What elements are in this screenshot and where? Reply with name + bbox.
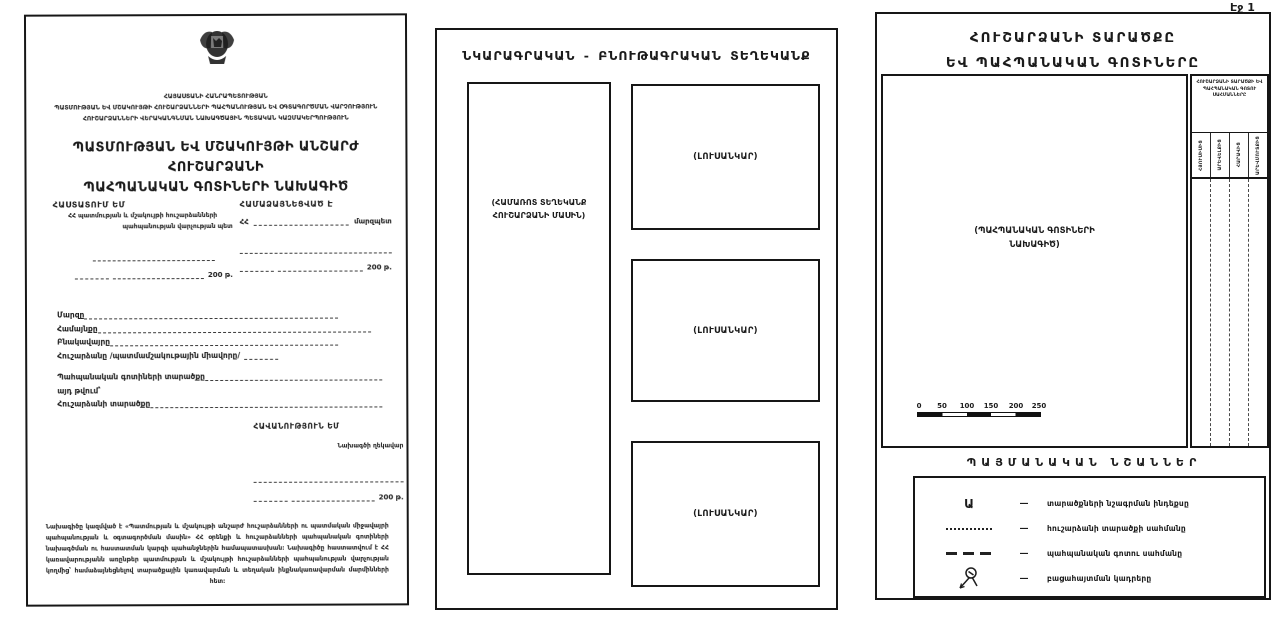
scale-tick: 150: [984, 402, 999, 410]
field-label: Համայնքը: [57, 324, 98, 333]
photo-placeholder-box-3: (ԼՈՒՍԱՆԿԱՐ): [631, 441, 820, 587]
agree-heading: ՀԱՄԱՁԱՅՆԵՑՎԱԾ Է: [240, 199, 392, 209]
document-title-line-2: ՊԱՀՊԱՆԱԿԱՆ ԳՈՏԻՆԵՐԻ ՆԱԽԱԳԻԾ: [35, 178, 398, 199]
field-label: Հուշարձանի տարածքը: [57, 399, 150, 408]
date-line: [240, 264, 274, 272]
field-row-protection-zone-area: Պահպանական գոտիների տարածքը: [57, 371, 382, 381]
side-table-column-headers: ՀՅՈՒՍԻՍԻՑ ԱՐԵՎԵԼՔԻՑ ՀԱՐԱՎԻՑ ԱՐԵՎՄՈՒՏՔԻՑ: [1192, 133, 1267, 179]
date-line: [254, 494, 288, 502]
field-blank-line: [244, 351, 278, 359]
photo-placeholder-label: (ԼՈՒՍԱՆԿԱՐ): [693, 509, 758, 519]
date-line: [75, 271, 109, 279]
approve-block: ՀԱՍՏԱՏՈՒՄ ԵՄ ՀՀ պատմության և մշակույթի հ…: [53, 200, 233, 280]
field-blank-line: [84, 311, 338, 320]
field-label: Հուշարձանը /պատմամշակութային միավորը/: [57, 350, 240, 360]
legend-item-index: Ա — տարածքների նշագրման ինդեքսը: [937, 491, 1248, 516]
photo-placeholder-label: (ԼՈՒՍԱՆԿԱՐ): [693, 326, 758, 336]
legend-title: ՊԱՅՄԱՆԱԿԱՆ ՆՇԱՆՆԵՐ: [907, 456, 1261, 469]
column-header-north: ՀՅՈՒՍԻՍԻՑ: [1192, 133, 1211, 177]
scale-tick: 0: [917, 402, 922, 410]
panel3-title-line-2: ԵՎ ՊԱՀՊԱՆԱԿԱՆ ԳՈՏԻՆԵՐԸ: [881, 51, 1265, 76]
map-placeholder-line-2: ՆԱԽԱԳԻԾ): [887, 238, 1182, 252]
photo-placeholder-box-2: (ԼՈՒՍԱՆԿԱՐ): [631, 259, 820, 402]
document-title-line-1: ՊԱՏՄՈՒԹՅԱՆ ԵՎ ՄՇԱԿՈՒՅԹԻ ԱՆՇԱՐԺ ՀՈՒՇԱՐՁԱՆ…: [34, 137, 397, 179]
dotted-line-symbol: [946, 528, 992, 530]
descriptive-reference-page: ՆԿԱՐԱԳՐԱԿԱՆ - ԲՆՈՒԹԱԳՐԱԿԱՆ ՏԵՂԵԿԱՆՔ (ՀԱՄ…: [435, 28, 838, 610]
project-approval-block: ՀԱՎԱՆՈՒԹՅՈՒՆ ԵՄ Նախագծի ղեկավար 200 թ.: [253, 421, 403, 502]
field-label: Բնակավայրը: [57, 337, 110, 346]
agree-role: մարզպետ: [354, 217, 392, 225]
signature-line: [240, 245, 392, 254]
legend-item-photo-frames: — բացահայտման կադրերը: [937, 566, 1248, 591]
field-row-monument-area: Հուշարձանի տարածքը: [57, 398, 382, 408]
dashed-line-symbol: [946, 552, 992, 555]
date-year-suffix: 200 թ.: [367, 263, 392, 271]
panel3-title: ՀՈՒՇԱՐՁԱՆԻ ՏԱՐԱԾՔԸ ԵՎ ՊԱՀՊԱՆԱԿԱՆ ԳՈՏԻՆԵՐ…: [881, 26, 1265, 76]
agree-prefix: ՀՀ: [240, 218, 249, 226]
approval-signature-row: ՀԱՍՏԱՏՈՒՄ ԵՄ ՀՀ պատմության և մշակույթի հ…: [53, 199, 392, 279]
agree-block: ՀԱՄԱՁԱՅՆԵՑՎԱԾ Է ՀՀ մարզպետ 200 թ.: [240, 199, 392, 279]
legend-separator: —: [1001, 549, 1047, 559]
map-placeholder-label: (ՊԱՀՊԱՆԱԿԱՆ ԳՈՏԻՆԵՐԻ ՆԱԽԱԳԻԾ): [887, 224, 1182, 253]
title-sheet-page: ՀԱՅԱՍՏԱՆԻ ՀԱՆՐԱՊԵՏՈՒԹՅԱՆ ՊԱՏՄՈՒԹՅԱՆ ԵՎ Մ…: [24, 13, 409, 606]
approve-subline-1: ՀՀ պատմության և մշակույթի հուշարձանների: [53, 211, 233, 221]
legend-separator: —: [1001, 574, 1047, 584]
photo-placeholder-label: (ԼՈՒՍԱՆԿԱՐ): [693, 152, 758, 162]
field-row-province: Մարզը: [57, 309, 382, 319]
brief-reference-label: (ՀԱՄԱՌՈՏ ՏԵՂԵԿԱՆՔ ՀՈՒՇԱՐՁԱՆԻ ՄԱՍԻՆ): [471, 196, 607, 222]
brief-reference-box: (ՀԱՄԱՌՈՏ ՏԵՂԵԿԱՆՔ ՀՈՒՇԱՐՁԱՆԻ ՄԱՍԻՆ): [467, 82, 611, 575]
field-row-including: այդ թվում՝: [57, 385, 382, 395]
field-blank-line: [98, 324, 371, 333]
side-table-header: ՀՈՒՇԱՐՁԱՆԻ ՏԱՐԱԾՔԻ ԵՎ ՊԱՀՊԱՆԱԿԱՆ ԳՈՏՈՒ Ս…: [1192, 76, 1267, 133]
field-label: Պահպանական գոտիների տարածքը: [57, 372, 205, 382]
field-label: Մարզը: [57, 310, 84, 319]
legend-item-label: հուշարձանի տարածքի սահմանը: [1047, 524, 1248, 533]
legend-separator: —: [1001, 499, 1047, 509]
date-line: [113, 271, 204, 279]
date-line: [278, 263, 363, 271]
armenia-coat-of-arms-icon: [194, 24, 240, 68]
column-header-west: ԱՐԵՎՄՈՒՏՔԻՑ: [1249, 133, 1267, 177]
document-title: ՊԱՏՄՈՒԹՅԱՆ ԵՎ ՄՇԱԿՈՒՅԹԻ ԱՆՇԱՐԺ ՀՈՒՇԱՐՁԱՆ…: [34, 137, 397, 199]
field-row-monument: Հուշարձանը /պատմամշակութային միավորը/: [57, 350, 382, 360]
scale-tick: 250: [1032, 402, 1047, 410]
field-label: այդ թվում՝: [57, 386, 100, 395]
panel2-title: ՆԿԱՐԱԳՐԱԿԱՆ - ԲՆՈՒԹԱԳՐԱԿԱՆ ՏԵՂԵԿԱՆՔ: [443, 48, 830, 63]
scale-tick: 100: [960, 402, 975, 410]
legend-item-zone-boundary: — պահպանական գոտու սահմանը: [937, 541, 1248, 566]
panel3-title-line-1: ՀՈՒՇԱՐՁԱՆԻ ՏԱՐԱԾՔԸ: [881, 26, 1265, 51]
boundaries-side-table: ՀՈՒՇԱՐՁԱՆԻ ՏԱՐԱԾՔԻ ԵՎ ՊԱՀՊԱՆԱԿԱՆ ԳՈՏՈՒ Ս…: [1190, 74, 1269, 448]
column-header-east: ԱՐԵՎԵԼՔԻՑ: [1211, 133, 1230, 177]
legend-box: Ա — տարածքների նշագրման ինդեքսը — հուշար…: [913, 476, 1266, 598]
legend-item-label: բացահայտման կադրերը: [1047, 574, 1248, 583]
org-line-2: ՊԱՏՄՈՒԹՅԱՆ ԵՎ ՄՇԱԿՈՒՅԹԻ ՀՈՒՇԱՐՁԱՆՆԵՐԻ ՊԱ…: [34, 102, 397, 114]
field-blank-line: [205, 372, 382, 381]
approve-subline-2: պահպանության վարչության պետ: [53, 222, 233, 232]
column-header-south: ՀԱՐԱՎԻՑ: [1230, 133, 1249, 177]
field-blank-line: [110, 338, 338, 347]
protection-zones-map-box: (ՊԱՀՊԱՆԱԿԱՆ ԳՈՏԻՆԵՐԻ ՆԱԽԱԳԻԾ) 0 50 100 1…: [881, 74, 1188, 448]
org-line-3: ՀՈՒՇԱՐՁԱՆՆԵՐԻ ՎԵՐԱԿԱՆԳՆՄԱՆ ՆԱԽԱԳԾԱՅԻՆ ՊԵ…: [34, 113, 397, 125]
brief-reference-label-line-1: (ՀԱՄԱՌՈՏ ՏԵՂԵԿԱՆՔ: [471, 196, 607, 209]
date-year-suffix: 200 թ.: [379, 493, 404, 501]
marz-name-line: [254, 218, 349, 226]
signature-line: [254, 474, 404, 483]
legend-item-label: պահպանական գոտու սահմանը: [1047, 549, 1248, 558]
field-row-community: Համայնքը: [57, 323, 382, 333]
monument-form-fields: Մարզը Համայնքը Բնակավայրը Հուշարձանը /պա…: [57, 309, 382, 413]
field-blank-line: [150, 399, 382, 408]
scale-tick: 200: [1009, 402, 1024, 410]
legend-item-label: տարածքների նշագրման ինդեքսը: [1047, 499, 1248, 508]
scale-bar-segments: [917, 412, 1041, 417]
map-scale-bar: 0 50 100 150 200 250: [917, 402, 1041, 420]
photo-station-tripod-icon: [956, 566, 982, 592]
footer-legal-paragraph: Նախագիծը կազմված է «Պատմության և մշակույ…: [46, 520, 389, 588]
project-leader-role: Նախագծի ղեկավար: [253, 441, 403, 451]
index-letter-symbol: Ա: [964, 497, 974, 511]
scale-tick: 50: [937, 402, 947, 410]
monument-territory-page: ՀՈՒՇԱՐՁԱՆԻ ՏԱՐԱԾՔԸ ԵՎ ՊԱՀՊԱՆԱԿԱՆ ԳՈՏԻՆԵՐ…: [875, 12, 1271, 600]
legend-separator: —: [1001, 524, 1047, 534]
approve-heading: ՀԱՍՏԱՏՈՒՄ ԵՄ: [53, 200, 233, 210]
legend-item-monument-boundary: — հուշարձանի տարածքի սահմանը: [937, 516, 1248, 541]
field-row-settlement: Բնակավայրը: [57, 336, 382, 346]
signature-line: [93, 253, 215, 261]
side-table-empty-rows: [1192, 179, 1267, 446]
date-year-suffix: 200 թ.: [208, 271, 233, 279]
map-placeholder-line-1: (ՊԱՀՊԱՆԱԿԱՆ ԳՈՏԻՆԵՐԻ: [887, 224, 1182, 238]
brief-reference-label-line-2: ՀՈՒՇԱՐՁԱՆԻ ՄԱՍԻՆ): [471, 209, 607, 222]
issuing-organization-lines: ՀԱՅԱՍՏԱՆԻ ՀԱՆՐԱՊԵՏՈՒԹՅԱՆ ՊԱՏՄՈՒԹՅԱՆ ԵՎ Մ…: [34, 91, 397, 125]
photo-placeholder-box-1: (ԼՈՒՍԱՆԿԱՐ): [631, 84, 820, 230]
project-approval-heading: ՀԱՎԱՆՈՒԹՅՈՒՆ ԵՄ: [253, 421, 403, 431]
date-line: [292, 493, 375, 501]
